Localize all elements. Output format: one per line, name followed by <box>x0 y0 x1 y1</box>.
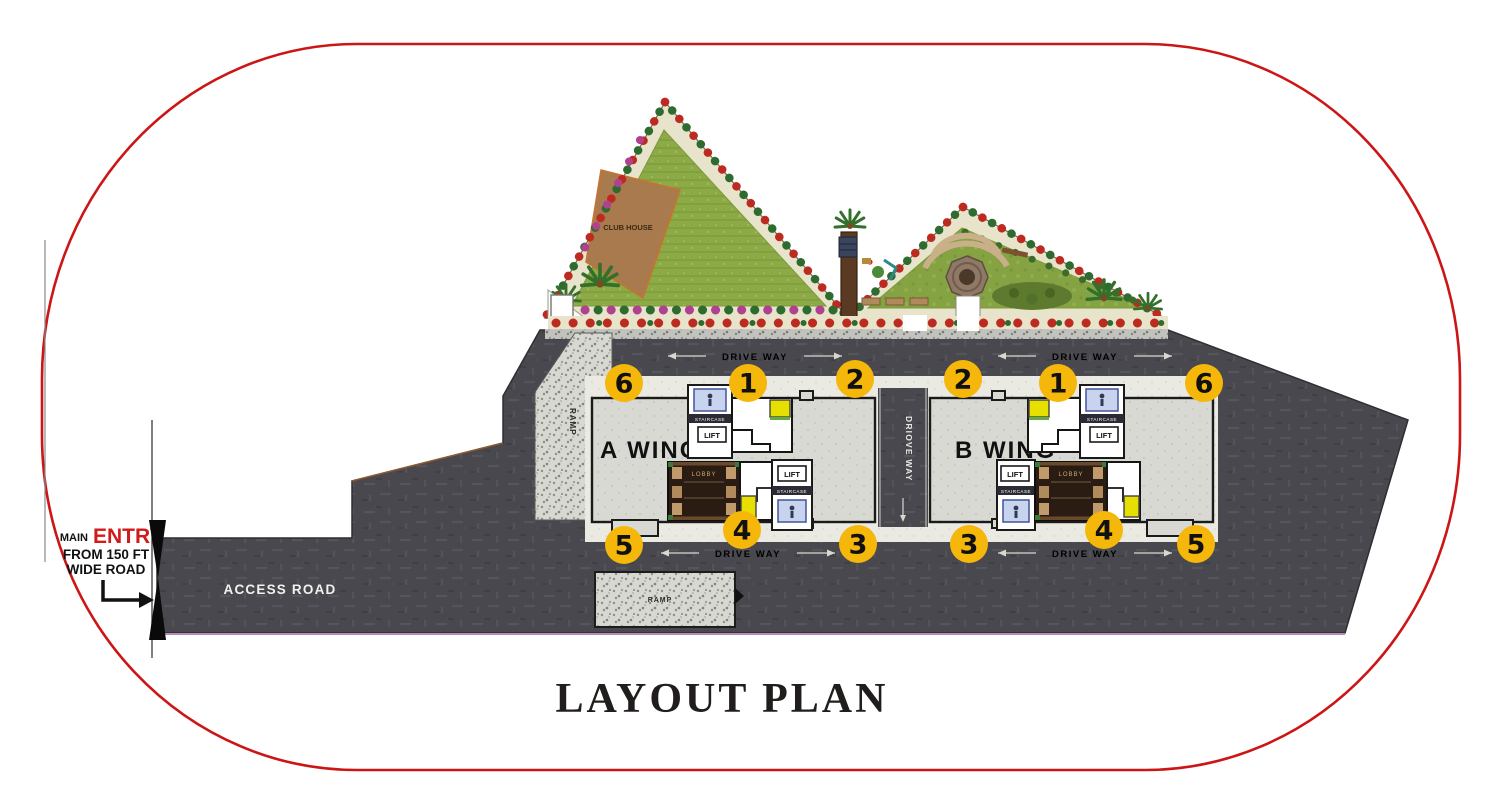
a-wing-top-unit <box>732 398 792 452</box>
badge-a-bottom-2: 4 <box>733 516 752 547</box>
garden-bench <box>886 298 904 305</box>
b-top-balcony <box>1029 400 1049 417</box>
badge-b-bottom-3: 5 <box>1187 530 1206 561</box>
a-bottom-lift-label: LIFT <box>784 470 800 479</box>
a-wing-top-core: STAIRCASE LIFT <box>688 385 732 458</box>
garden-right-triangle <box>848 207 1165 322</box>
garden-sidewalk-strip <box>545 329 1168 339</box>
page-title: LAYOUT PLAN <box>556 676 889 722</box>
entry-arrow-line <box>103 580 139 600</box>
badge-a-top-3: 2 <box>846 365 865 396</box>
a-wing-bottom-core: LIFT STAIRCASE <box>772 460 812 530</box>
a-wing-lobby: LOBBY <box>668 462 740 520</box>
main-entry-line3: WIDE ROAD <box>67 562 146 577</box>
club-house-label: CLUB HOUSE <box>603 223 653 232</box>
b-bottom-lift-label: LIFT <box>1007 470 1023 479</box>
badge-b-top-1: 2 <box>954 365 973 396</box>
garden-bench <box>862 298 880 305</box>
badge-b-bottom-1: 3 <box>960 530 979 561</box>
badge-b-top-3: 6 <box>1195 369 1214 400</box>
b-wing-building: B WING STAIRCASE LIFT LIFT STAIRCASE <box>930 385 1213 536</box>
a-wing-label: A WING <box>600 437 700 464</box>
access-road-label: ACCESS ROAD <box>224 582 337 597</box>
garden-hedge <box>992 282 1072 310</box>
svg-text:DRIVE WAY: DRIVE WAY <box>1052 352 1118 363</box>
b-wing-top-unit <box>1028 398 1080 452</box>
svg-text:DRIVE WAY: DRIVE WAY <box>722 352 788 363</box>
svg-text:DRIVE WAY: DRIVE WAY <box>1052 549 1118 560</box>
b-wing-bottom-unit <box>1107 462 1140 520</box>
a-bottom-staircase-label: STAIRCASE <box>777 489 807 494</box>
center-driveway: DRIOVE WAY <box>878 388 928 527</box>
garden-bench <box>910 298 928 305</box>
main-entry-annotation: MAIN ENTRY FROM 150 FT WIDE ROAD <box>60 520 166 640</box>
b-bottom-staircase-label: STAIRCASE <box>1001 489 1031 494</box>
badge-a-bottom-3: 3 <box>849 530 868 561</box>
site-plan-svg: RAMP DRIOVE WAY A WING STAIRCASE LIFT <box>0 0 1500 807</box>
garden-playground <box>862 258 896 280</box>
a-top-balcony <box>770 400 790 417</box>
main-entry-prefix: MAIN <box>60 532 88 544</box>
b-wing-notch-top <box>992 391 1005 400</box>
b-bottom-balcony <box>1124 496 1139 517</box>
badge-b-top-2: 1 <box>1049 369 1068 400</box>
center-driveway-label: DRIOVE WAY <box>904 416 914 482</box>
b-top-staircase-label: STAIRCASE <box>1087 417 1117 422</box>
a-top-lift-label: LIFT <box>704 431 720 440</box>
garden-path-opening <box>957 315 979 331</box>
garden-left-triangle: CLUB HOUSE <box>545 102 848 325</box>
badge-a-top-2: 1 <box>739 369 758 400</box>
a-wing-notch-top <box>800 391 813 400</box>
b-wing-top-core: STAIRCASE LIFT <box>1080 385 1124 458</box>
a-top-staircase-label: STAIRCASE <box>695 417 725 422</box>
garden-driveway-opening <box>903 315 927 331</box>
badge-a-top-1: 6 <box>615 369 634 400</box>
layout-plan-canvas: RAMP DRIOVE WAY A WING STAIRCASE LIFT <box>0 0 1500 807</box>
b-wing-lobby: LOBBY <box>1035 462 1107 520</box>
b-wing-bottom-core: LIFT STAIRCASE <box>997 460 1035 530</box>
side-ramp-label: RAMP <box>568 408 577 436</box>
garden-bottom-bush-row <box>548 315 1168 331</box>
bottom-ramp: RAMP <box>595 572 744 627</box>
a-lobby-label: LOBBY <box>691 472 716 478</box>
main-entry-line2: FROM 150 FT <box>63 547 150 562</box>
garden-gazebo <box>946 256 988 298</box>
badge-b-bottom-2: 4 <box>1095 516 1114 547</box>
svg-text:DRIVE WAY: DRIVE WAY <box>715 549 781 560</box>
b-lobby-label: LOBBY <box>1058 472 1083 478</box>
b-top-lift-label: LIFT <box>1096 431 1112 440</box>
badge-a-bottom-1: 5 <box>615 531 634 562</box>
bottom-ramp-label: RAMP <box>648 597 673 604</box>
